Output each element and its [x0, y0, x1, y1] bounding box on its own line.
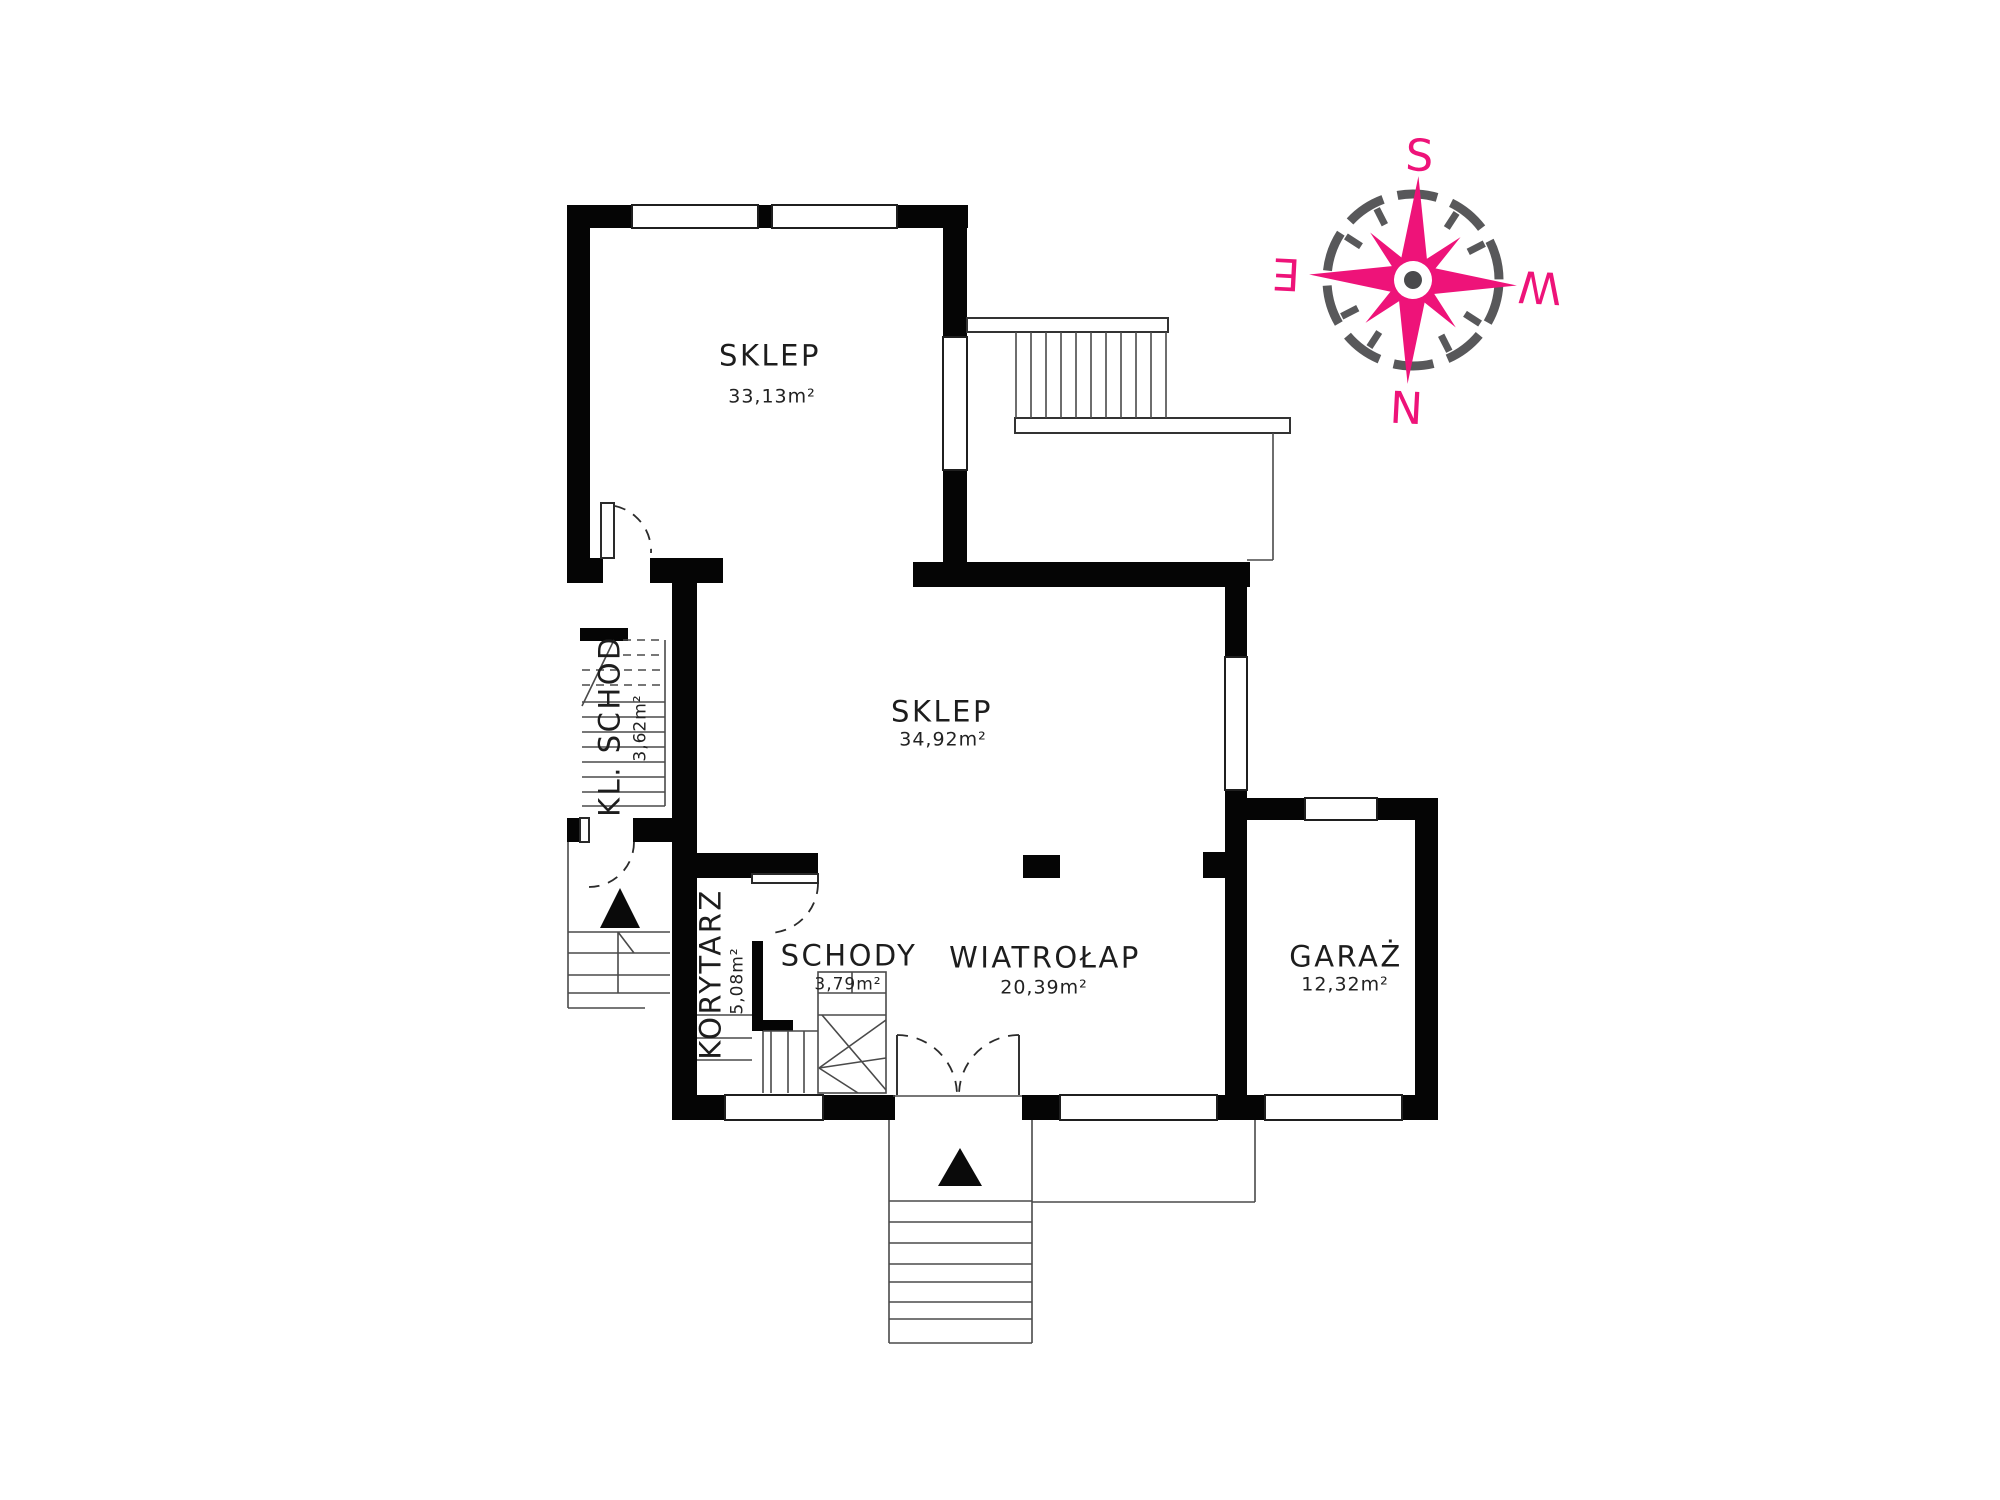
door-swing-arc [589, 842, 634, 887]
room-area-garage: 12,32m² [1301, 976, 1389, 995]
terrace-platform-edge [1247, 433, 1273, 560]
wall-segment [567, 205, 632, 228]
window [943, 337, 967, 470]
wall-segment [567, 205, 590, 558]
wall-segment [752, 1020, 793, 1031]
door-swing-arc [768, 883, 818, 933]
wall-segment [1225, 790, 1247, 1118]
wall-segment [752, 941, 763, 1031]
double-door-leaves [897, 1035, 1019, 1095]
side-entrance-steps [568, 842, 670, 1008]
door-swing-arc [615, 506, 651, 553]
wall-segment [823, 1095, 895, 1120]
garage-apron-edge [1032, 1120, 1255, 1202]
compass-label-east: E [1271, 247, 1301, 299]
garage-door-opening [1265, 1095, 1402, 1120]
compass-label-south: S [1404, 130, 1435, 182]
door-leaf [601, 503, 614, 558]
door-swing-arc [897, 1035, 957, 1095]
doors [580, 503, 1022, 1096]
room-label-shop-upper: SKLEP [719, 342, 821, 371]
window [1305, 798, 1377, 820]
front-porch [889, 1120, 1255, 1343]
door-swing-arc [959, 1035, 1019, 1095]
room-label-vestibule: WIATROŁAP [949, 944, 1141, 973]
window [725, 1095, 823, 1120]
wall-segment [943, 205, 967, 337]
window [772, 205, 897, 228]
wall-segment [633, 818, 672, 842]
room-label-staircase: KL. SCHOD [596, 635, 625, 817]
room-area-corridor: 5,08m² [730, 947, 747, 1014]
entrance-arrow-icon [600, 888, 640, 928]
room-area-shop-upper: 33,13m² [728, 388, 816, 407]
wall-segment [567, 558, 603, 583]
floor-plan-page: S W N E SKLEP 33,13m² SKLEP 34,92m² KL. … [0, 0, 2000, 1500]
wall-segment [1247, 798, 1305, 820]
window [1225, 657, 1247, 790]
window [1060, 1095, 1217, 1120]
room-area-staircase: 3,62m² [633, 694, 650, 761]
wall-stub [1203, 852, 1225, 878]
compass-rose: S W N E [1264, 123, 1569, 439]
floor-plan-drawing: S W N E [0, 0, 2000, 1500]
room-area-vestibule: 20,39m² [1000, 979, 1088, 998]
door-leaf [752, 874, 818, 883]
wall-segment [1225, 585, 1247, 657]
wall-segment [1217, 1095, 1265, 1120]
room-area-shop-main: 34,92m² [899, 731, 987, 750]
room-area-stairs: 3,79m² [814, 977, 881, 994]
terrace-rail [967, 318, 1168, 332]
wall-segment [672, 1095, 725, 1120]
door-leaf [580, 818, 589, 842]
entrance-arrow-icon [938, 1148, 982, 1186]
wall-segment [913, 562, 1250, 587]
terrace [967, 318, 1290, 560]
wall-pier [1023, 855, 1060, 878]
room-label-stairs: SCHODY [781, 942, 918, 971]
compass-label-north: N [1389, 380, 1425, 433]
terrace-stair-treads [1016, 332, 1166, 418]
lower-flight-treads [763, 1031, 818, 1093]
wall-segment [943, 470, 967, 562]
winder-fan-lines [819, 1015, 886, 1093]
wall-segment [758, 205, 772, 228]
terrace-rail [1015, 418, 1290, 433]
compass-label-west: W [1517, 260, 1563, 313]
wall-segment [650, 558, 723, 583]
room-label-corridor: KORYTARZ [697, 888, 726, 1060]
room-label-shop-main: SKLEP [891, 698, 993, 727]
wall-segment [1022, 1095, 1060, 1120]
window [632, 205, 758, 228]
wall-segment [1415, 798, 1438, 1118]
room-label-garage: GARAŻ [1289, 943, 1403, 972]
